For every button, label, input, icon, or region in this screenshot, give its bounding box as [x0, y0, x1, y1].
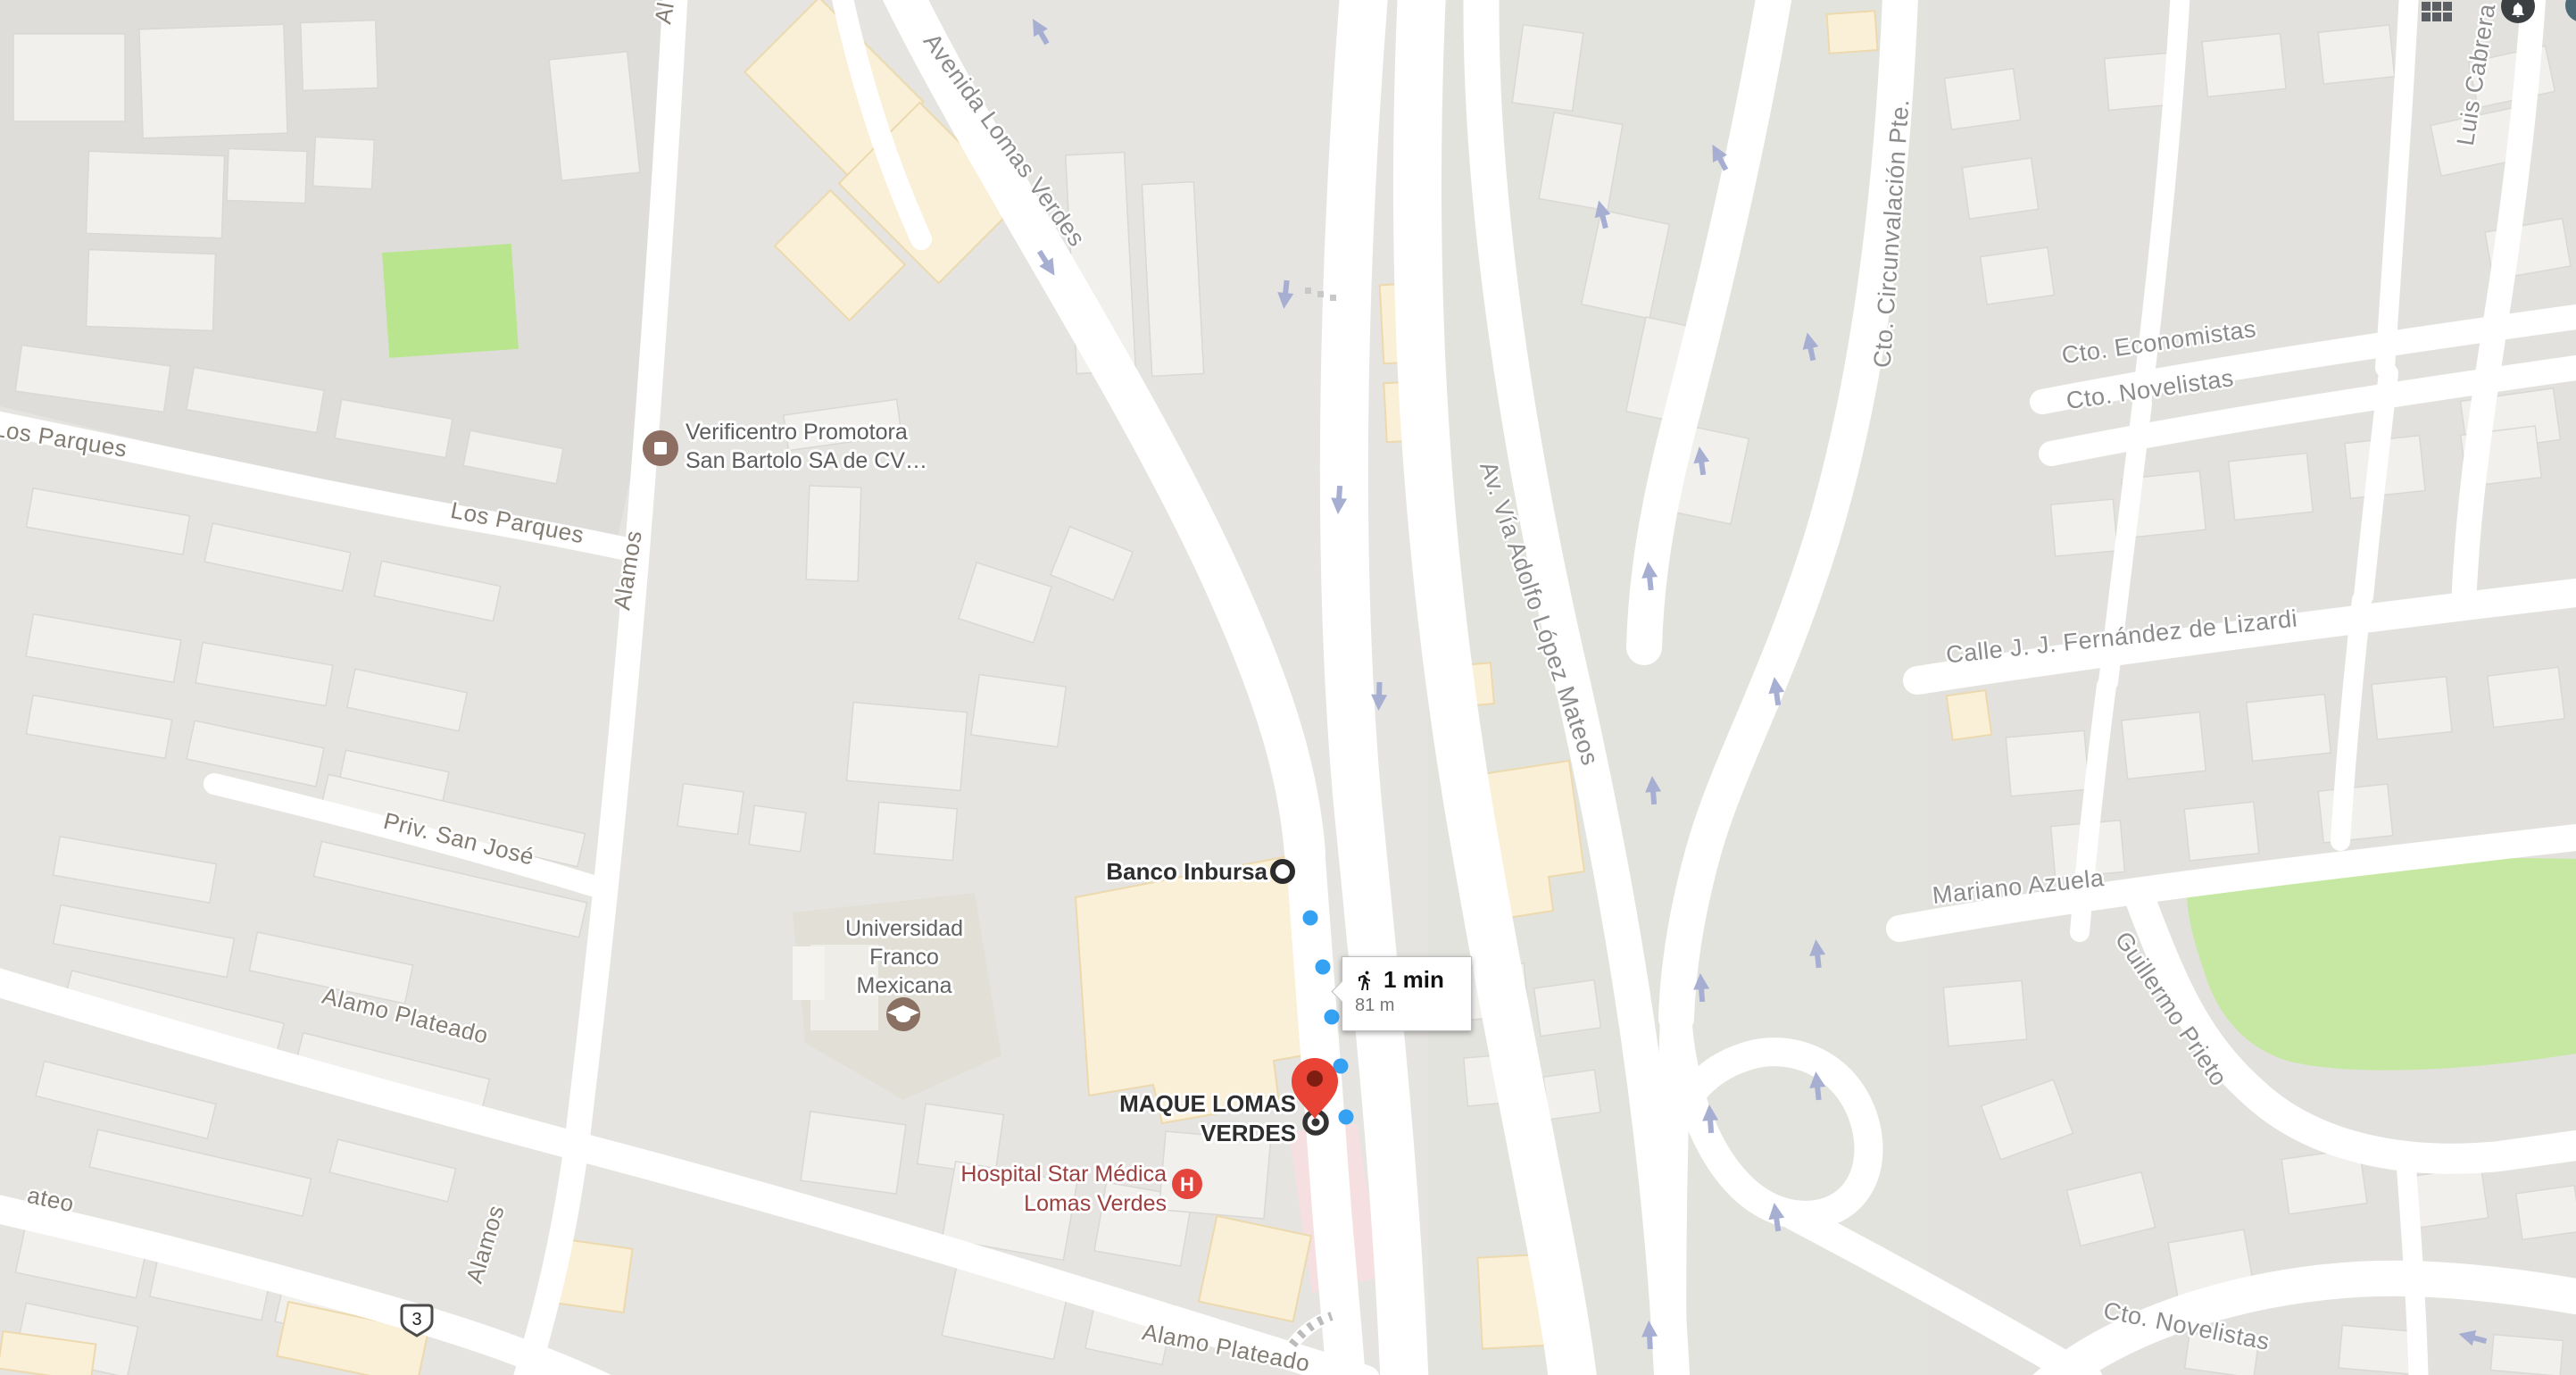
poi-label-banco-inbursa[interactable]: Banco Inbursa	[1106, 858, 1267, 885]
poi-verificentro[interactable]: Verificentro Promotora San Bartolo SA de…	[643, 420, 927, 473]
poi-label-hospital-line2[interactable]: Lomas Verdes	[1024, 1191, 1167, 1216]
route-origin-circle[interactable]	[1273, 862, 1292, 881]
target-circle-dot	[1312, 1119, 1320, 1127]
bell-icon	[2509, 1, 2527, 19]
poi-label-maque-line2[interactable]: VERDES	[1201, 1120, 1296, 1146]
apps-grid-dot	[2432, 2, 2441, 11]
road-shield-number: 3	[411, 1310, 421, 1329]
map-canvas[interactable]: Avenida Lomas Verdes Av. Vía Adolfo Lópe…	[0, 0, 2576, 1375]
poi-label-universidad-line2[interactable]: Franco	[869, 945, 939, 970]
apps-grid-dot	[2422, 12, 2431, 21]
street-label-alamos-lower: Alamos	[461, 1202, 510, 1287]
apps-grid-dot	[2443, 2, 2452, 11]
route-distance: 81 m	[1355, 996, 1462, 1016]
route-dot[interactable]	[1316, 960, 1331, 975]
poi-label-verificentro-line2[interactable]: San Bartolo SA de CV…	[686, 448, 927, 473]
hospital-icon-letter: H	[1180, 1173, 1194, 1196]
poi-label-universidad-line3[interactable]: Mexicana	[857, 973, 952, 998]
apps-grid-dot	[2443, 12, 2452, 21]
poi-label-maque-line1[interactable]: MAQUE LOMAS	[1119, 1090, 1296, 1117]
poi-label-verificentro-line1[interactable]: Verificentro Promotora	[686, 420, 908, 445]
apps-grid-dot	[2422, 2, 2431, 11]
poi-banco-inbursa[interactable]: Banco Inbursa	[1106, 858, 1292, 885]
poi-label-hospital-line1[interactable]: Hospital Star Médica	[960, 1162, 1167, 1187]
street-label-partial-al: Al	[649, 0, 679, 26]
map-viewport[interactable]: Avenida Lomas Verdes Av. Vía Adolfo Lópe…	[0, 0, 2576, 1375]
shop-square-icon-glyph	[654, 442, 667, 454]
route-dot[interactable]	[1325, 1010, 1340, 1025]
route-tooltip[interactable]: 1 min 81 m	[1342, 956, 1472, 1031]
red-map-pin-dot	[1307, 1071, 1323, 1087]
apps-grid-icon[interactable]	[2422, 0, 2452, 21]
apps-grid-dot	[2432, 12, 2441, 21]
route-duration: 1 min	[1384, 966, 1444, 994]
walking-person-icon	[1355, 967, 1376, 994]
poi-label-universidad-line1[interactable]: Universidad	[845, 916, 963, 941]
route-dot[interactable]	[1339, 1110, 1354, 1125]
route-dot[interactable]	[1303, 911, 1318, 926]
